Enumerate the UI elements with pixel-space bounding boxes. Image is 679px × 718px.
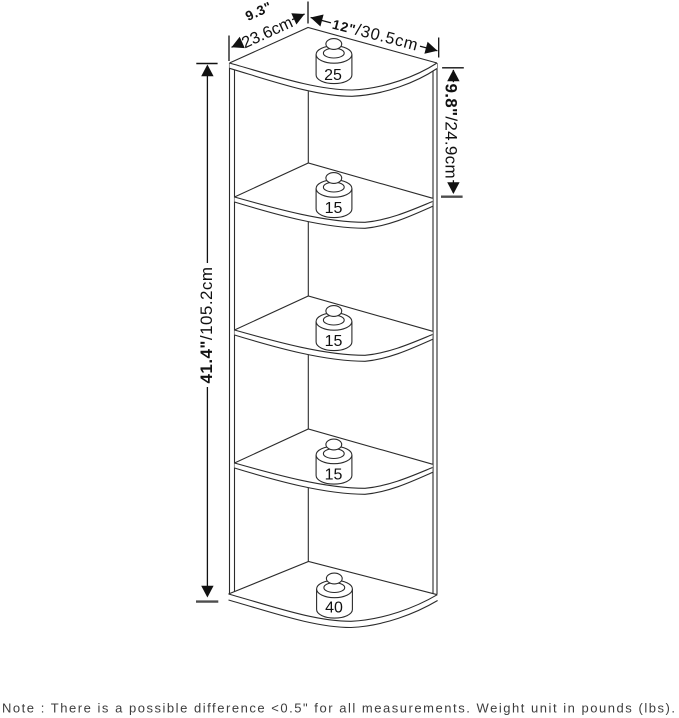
svg-text:15: 15 — [325, 333, 343, 350]
svg-text:41.4"/105.2cm: 41.4"/105.2cm — [197, 267, 216, 384]
svg-text:15: 15 — [325, 467, 343, 484]
svg-text:15: 15 — [325, 200, 343, 217]
svg-text:25: 25 — [324, 67, 342, 84]
svg-text:9.3": 9.3" — [243, 0, 274, 24]
svg-text:40: 40 — [325, 600, 343, 617]
svg-text:9.8"/24.9cm: 9.8"/24.9cm — [442, 83, 461, 178]
svg-text:Note : There is a possible dif: Note : There is a possible difference <0… — [2, 701, 675, 716]
